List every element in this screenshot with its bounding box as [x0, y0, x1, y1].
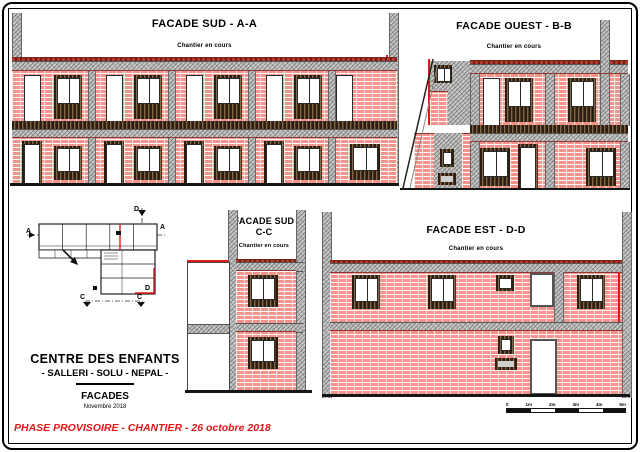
door-frame — [22, 141, 42, 184]
column — [328, 71, 336, 122]
window — [217, 148, 240, 172]
column — [88, 71, 96, 122]
section-marker-square — [93, 286, 97, 290]
facade-est-dd-subtitle: Chantier en cours — [330, 246, 622, 252]
drawing-sheet: FACADE SUD - A-A Chantier en cours — [0, 0, 640, 452]
scale-label: 2m — [549, 402, 556, 407]
plan-marker-d-top: D — [134, 206, 139, 213]
plan-marker-d-bottom: D — [145, 285, 150, 292]
door — [266, 75, 283, 122]
ground-line — [10, 183, 399, 186]
window — [508, 81, 531, 107]
column — [545, 74, 555, 126]
vent-grille — [498, 361, 514, 367]
window-sill-panel — [498, 336, 514, 354]
window — [251, 278, 275, 300]
facade-est-dd-drawing — [322, 258, 630, 398]
door — [266, 144, 282, 184]
door-frame — [518, 144, 538, 189]
column — [168, 138, 176, 184]
window — [580, 278, 603, 302]
key-plan: A A D D C C — [25, 202, 170, 310]
rising-column — [600, 20, 610, 73]
door — [336, 75, 353, 122]
window — [297, 78, 320, 104]
window — [571, 81, 594, 107]
window — [483, 151, 508, 177]
rising-column — [296, 210, 306, 392]
door-frame — [184, 141, 204, 184]
facade-sud-aa-subtitle: Chantier en cours — [12, 43, 397, 49]
upper-wall — [470, 73, 628, 126]
facade-sud-aa-drawing — [12, 57, 397, 186]
window — [57, 148, 80, 172]
door — [186, 75, 203, 122]
stair-slope-lines — [400, 57, 472, 190]
window-sill-panel — [350, 144, 380, 180]
floor-slab — [188, 324, 229, 334]
window-sill-panel — [248, 275, 278, 307]
door-frame — [264, 141, 284, 184]
column — [168, 71, 176, 122]
window-sill-panel — [294, 146, 322, 180]
window — [57, 78, 80, 104]
window — [530, 273, 554, 307]
sheet-name: FACADES — [15, 391, 195, 402]
phase-note: PHASE PROVISOIRE - CHANTIER - 26 octobre… — [14, 422, 271, 434]
facade-ouest-bb-drawing — [400, 57, 628, 190]
column — [470, 142, 480, 189]
door — [530, 339, 557, 395]
project-location: - SALLERI - SOLU - NEPAL - — [15, 368, 195, 379]
window-sill-panel — [480, 148, 510, 186]
column — [600, 74, 610, 126]
column — [248, 138, 256, 184]
column — [248, 71, 256, 122]
facade-sud-aa-title: FACADE SUD - A-A — [12, 18, 397, 30]
window — [355, 278, 378, 302]
door-frame — [104, 141, 124, 184]
facade-ouest-bb-subtitle: Chantier en cours — [400, 44, 628, 50]
window — [217, 78, 240, 104]
window-sill-panel — [248, 337, 278, 369]
window-sill-panel — [428, 275, 456, 309]
upper-wall — [12, 70, 397, 122]
door — [483, 78, 500, 126]
title-block: CENTRE DES ENFANTS - SALLERI - SOLU - NE… — [15, 352, 195, 410]
window-sill-panel — [54, 146, 82, 180]
upper-wall — [330, 272, 622, 323]
facade-ouest-bb-title: FACADE OUEST - B-B — [400, 20, 628, 32]
scale-bar-labels: 0 1m 2m 3m 4m 5m — [506, 402, 626, 407]
plan-marker-c-right: C — [137, 294, 142, 301]
title-divider — [76, 383, 134, 385]
column — [620, 74, 630, 126]
window-sill-panel — [54, 75, 82, 119]
rising-column — [622, 212, 632, 398]
lower-wall — [12, 137, 397, 184]
window-sill-panel — [568, 78, 596, 122]
door — [186, 144, 202, 184]
upper-wall — [236, 270, 296, 324]
lower-wall — [330, 330, 622, 395]
scale-label: 4m — [596, 402, 603, 407]
window-sill-panel — [352, 275, 380, 309]
scale-label: 5m — [619, 402, 626, 407]
window — [137, 148, 160, 172]
window — [353, 147, 378, 171]
window — [297, 148, 320, 172]
window — [499, 278, 512, 289]
ground-line — [322, 394, 630, 397]
column — [470, 74, 480, 126]
window-sill-panel — [496, 275, 514, 291]
window-sill-panel — [134, 146, 162, 180]
lower-wall — [470, 141, 628, 189]
scale-label: 3m — [572, 402, 579, 407]
door — [106, 144, 122, 184]
vent-opening — [495, 358, 517, 370]
door — [24, 144, 40, 184]
facade-sud-cc-drawing — [185, 255, 312, 400]
plan-marker-a-right: A — [160, 224, 165, 231]
door — [520, 147, 536, 189]
column — [545, 142, 555, 189]
facade-est-dd-title: FACADE EST - D-D — [330, 224, 622, 236]
window-sill-panel — [134, 75, 162, 119]
sheet-date: Novembre 2018 — [15, 404, 195, 410]
project-title: CENTRE DES ENFANTS — [15, 352, 195, 366]
ground-line — [185, 390, 312, 393]
scale-label: 0 — [506, 402, 509, 407]
scale-bar-segments — [506, 408, 626, 413]
lower-wall — [236, 331, 296, 391]
window-sill-panel — [294, 75, 322, 119]
window-sill-panel — [505, 78, 533, 122]
ground-line — [400, 188, 630, 190]
window-sill-panel — [586, 148, 616, 186]
column — [328, 138, 336, 184]
section-marker-square — [116, 231, 121, 235]
plan-marker-c-left: C — [80, 294, 85, 301]
window-sill-panel — [214, 146, 242, 180]
window — [589, 151, 614, 177]
column — [88, 138, 96, 184]
scale-label: 1m — [525, 402, 532, 407]
window-sill-panel — [577, 275, 605, 309]
window — [251, 340, 275, 362]
window-sill-panel — [214, 75, 242, 119]
door — [106, 75, 123, 122]
lintel-band — [12, 121, 397, 129]
window — [137, 78, 160, 104]
column — [620, 142, 630, 189]
scale-bar: 0 1m 2m 3m 4m 5m — [506, 402, 626, 413]
window — [501, 339, 511, 351]
lintel-band — [470, 125, 628, 133]
door — [24, 75, 41, 122]
window — [431, 278, 454, 302]
